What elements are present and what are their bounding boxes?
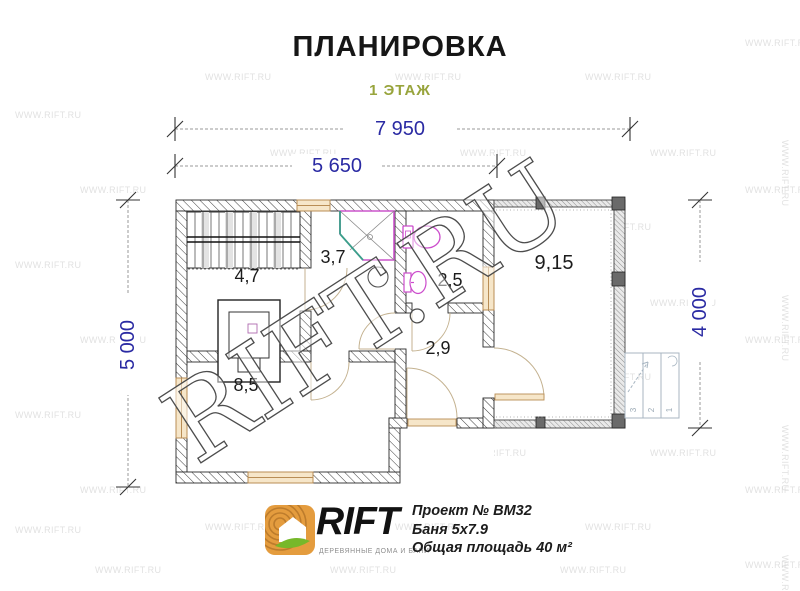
room-label-steam: 4,7 [234, 266, 259, 286]
project-info: Проект № ВМ32 Баня 5х7.9 Общая площадь 4… [412, 502, 572, 558]
floor-plan-page: WWW.RIFT.RUWWW.RIFT.RUWWW.RIFT.RUWWW.RIF… [0, 0, 800, 591]
dim-height-main: 5 000 [116, 295, 140, 395]
brand-wordmark: RIFT [316, 500, 399, 544]
step-number-1: 1 [665, 407, 674, 412]
dim-width-main: 5 650 [292, 154, 382, 178]
step-numbers: 1 2 3 [629, 407, 674, 412]
rift-logo-icon [265, 505, 315, 555]
project-area: Общая площадь 40 м² [412, 539, 572, 558]
dim-height-terrace: 4 000 [688, 262, 712, 362]
step-number-3: 3 [629, 407, 638, 412]
project-type: Баня 5х7.9 [412, 521, 572, 540]
step-number-2: 2 [647, 407, 656, 412]
dim-width-total: 7 950 [350, 117, 450, 141]
project-number: Проект № ВМ32 [412, 502, 572, 521]
stairs [187, 212, 300, 269]
